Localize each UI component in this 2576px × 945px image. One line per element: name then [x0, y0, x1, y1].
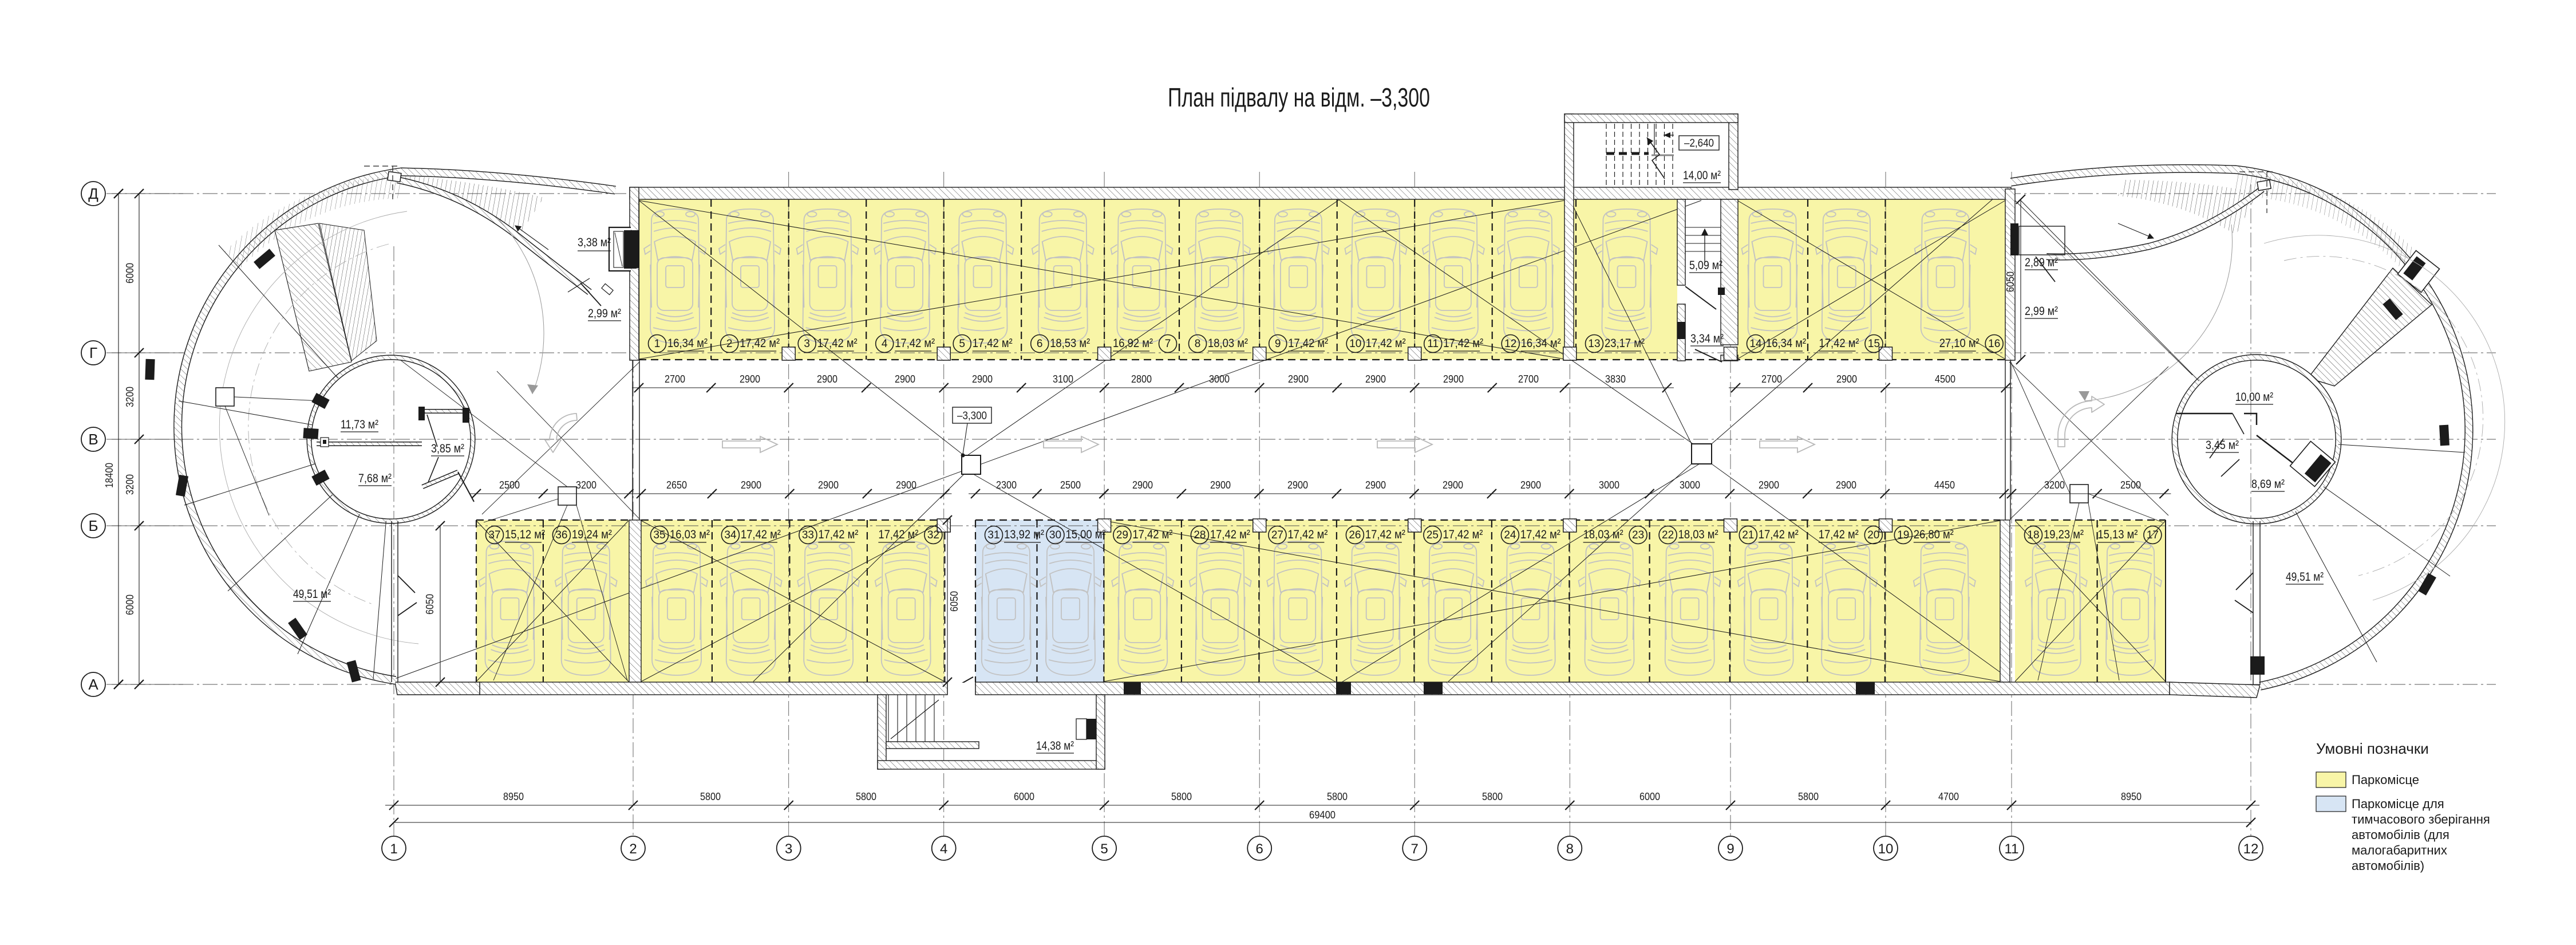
- svg-text:5800: 5800: [1482, 791, 1503, 802]
- svg-text:23,17 м²: 23,17 м²: [1605, 337, 1645, 350]
- svg-text:17: 17: [2147, 529, 2159, 541]
- svg-text:6: 6: [1256, 841, 1263, 857]
- svg-text:6000: 6000: [1639, 791, 1660, 802]
- svg-text:6: 6: [1037, 338, 1043, 350]
- svg-text:19,23 м²: 19,23 м²: [2044, 528, 2084, 541]
- svg-text:29: 29: [1116, 529, 1128, 541]
- svg-text:2900: 2900: [1836, 479, 1856, 491]
- svg-text:2900: 2900: [740, 373, 760, 385]
- svg-text:14: 14: [1749, 338, 1762, 350]
- svg-text:9: 9: [1275, 338, 1281, 350]
- svg-text:3,85 м²: 3,85 м²: [431, 442, 464, 455]
- svg-text:26: 26: [1349, 529, 1361, 541]
- svg-text:6000: 6000: [1014, 791, 1034, 802]
- svg-text:17,42 м²: 17,42 м²: [741, 528, 781, 541]
- svg-text:2900: 2900: [1287, 479, 1308, 491]
- svg-text:16: 16: [1988, 338, 2000, 350]
- svg-text:16,34 м²: 16,34 м²: [1766, 337, 1806, 350]
- svg-text:2900: 2900: [896, 479, 916, 491]
- svg-text:2500: 2500: [2120, 479, 2141, 491]
- svg-text:34: 34: [724, 529, 737, 541]
- svg-text:3,45 м²: 3,45 м²: [2206, 439, 2239, 452]
- svg-text:36: 36: [555, 529, 567, 541]
- svg-text:2900: 2900: [895, 373, 915, 385]
- svg-text:32: 32: [927, 529, 939, 541]
- svg-text:23: 23: [1632, 529, 1644, 541]
- svg-text:7,68 м²: 7,68 м²: [358, 472, 392, 485]
- svg-text:6050: 6050: [424, 594, 436, 615]
- svg-text:Умовні позначки: Умовні позначки: [2316, 740, 2429, 757]
- svg-text:6000: 6000: [124, 594, 136, 615]
- svg-text:2900: 2900: [1132, 479, 1153, 491]
- svg-text:малогабаритних: малогабаритних: [2352, 843, 2447, 857]
- svg-text:3200: 3200: [124, 474, 136, 495]
- svg-text:16,92 м²: 16,92 м²: [1113, 337, 1153, 350]
- svg-text:17,42 м²: 17,42 м²: [1132, 528, 1172, 541]
- svg-text:25: 25: [1427, 529, 1439, 541]
- svg-text:2500: 2500: [1060, 479, 1081, 491]
- svg-text:8950: 8950: [503, 791, 524, 802]
- svg-text:2900: 2900: [1365, 373, 1386, 385]
- svg-text:3000: 3000: [1680, 479, 1700, 491]
- svg-text:4: 4: [940, 841, 947, 857]
- svg-text:автомобілів): автомобілів): [2352, 859, 2424, 873]
- svg-text:18,03 м²: 18,03 м²: [1208, 337, 1248, 350]
- svg-text:Д: Д: [88, 185, 98, 202]
- svg-text:3,38 м²: 3,38 м²: [578, 236, 611, 249]
- svg-text:автомобілів (для: автомобілів (для: [2352, 828, 2449, 842]
- svg-text:4: 4: [882, 338, 888, 350]
- svg-text:14,38 м²: 14,38 м²: [1036, 739, 1074, 753]
- svg-text:69400: 69400: [1309, 809, 1336, 821]
- svg-text:17,42 м²: 17,42 м²: [1520, 528, 1560, 541]
- svg-text:8: 8: [1195, 338, 1201, 350]
- svg-text:2700: 2700: [665, 373, 685, 385]
- svg-text:8,69 м²: 8,69 м²: [2251, 478, 2285, 491]
- svg-text:2800: 2800: [1131, 373, 1152, 385]
- svg-text:33: 33: [802, 529, 814, 541]
- svg-text:37: 37: [488, 529, 500, 541]
- svg-text:2300: 2300: [996, 479, 1017, 491]
- svg-text:35: 35: [653, 529, 665, 541]
- svg-text:10: 10: [1878, 841, 1894, 857]
- svg-text:тимчасового зберігання: тимчасового зберігання: [2352, 812, 2490, 826]
- svg-text:1: 1: [654, 338, 661, 350]
- svg-text:19,24 м²: 19,24 м²: [572, 528, 612, 541]
- svg-text:3100: 3100: [1053, 373, 1073, 385]
- svg-text:13,92 м²: 13,92 м²: [1004, 528, 1044, 541]
- svg-text:12: 12: [2243, 841, 2259, 857]
- svg-text:Паркомісце: Паркомісце: [2352, 773, 2419, 787]
- svg-text:19: 19: [1897, 529, 1909, 541]
- svg-text:17,42 м²: 17,42 м²: [818, 528, 858, 541]
- svg-text:3200: 3200: [576, 479, 596, 491]
- svg-text:Г: Г: [89, 344, 97, 361]
- svg-text:49,51 м²: 49,51 м²: [293, 588, 331, 601]
- svg-text:2900: 2900: [1210, 479, 1231, 491]
- svg-text:2900: 2900: [1520, 479, 1541, 491]
- svg-text:2700: 2700: [1518, 373, 1539, 385]
- svg-text:А: А: [88, 676, 98, 693]
- svg-text:15: 15: [1868, 338, 1880, 350]
- svg-text:18: 18: [2027, 529, 2039, 541]
- svg-text:2650: 2650: [666, 479, 687, 491]
- svg-text:3200: 3200: [124, 387, 136, 407]
- svg-text:3: 3: [785, 841, 792, 857]
- svg-text:12: 12: [1504, 338, 1516, 350]
- svg-text:2,99 м²: 2,99 м²: [2025, 305, 2058, 318]
- svg-text:49,51 м²: 49,51 м²: [2286, 570, 2324, 584]
- svg-text:4450: 4450: [1934, 479, 1955, 491]
- svg-text:17,42 м²: 17,42 м²: [1366, 337, 1406, 350]
- svg-text:27: 27: [1271, 529, 1283, 541]
- svg-text:11: 11: [1427, 338, 1439, 350]
- svg-text:17,42 м²: 17,42 м²: [740, 337, 780, 350]
- svg-text:17,42 м²: 17,42 м²: [973, 337, 1013, 350]
- svg-text:2,99 м²: 2,99 м²: [588, 307, 621, 320]
- svg-text:18,03 м²: 18,03 м²: [1583, 528, 1623, 541]
- svg-text:2900: 2900: [817, 373, 837, 385]
- svg-text:14,00 м²: 14,00 м²: [1683, 169, 1721, 182]
- svg-text:4500: 4500: [1935, 373, 1955, 385]
- svg-text:17,42 м²: 17,42 м²: [1365, 528, 1405, 541]
- svg-text:2700: 2700: [1761, 373, 1782, 385]
- svg-text:3,34 м²: 3,34 м²: [1690, 332, 1724, 345]
- svg-text:17,42 м²: 17,42 м²: [1443, 337, 1483, 350]
- svg-text:16,34 м²: 16,34 м²: [1521, 337, 1561, 350]
- svg-text:4700: 4700: [1938, 791, 1959, 802]
- svg-text:6050: 6050: [2005, 271, 2016, 292]
- svg-text:2900: 2900: [1836, 373, 1857, 385]
- svg-text:24: 24: [1504, 529, 1516, 541]
- svg-text:1: 1: [390, 841, 397, 857]
- svg-text:2900: 2900: [972, 373, 993, 385]
- svg-text:2900: 2900: [1365, 479, 1386, 491]
- svg-text:3830: 3830: [1605, 373, 1626, 385]
- svg-text:–2,640: –2,640: [1684, 137, 1714, 149]
- svg-text:5: 5: [1100, 841, 1108, 857]
- svg-text:5: 5: [959, 338, 965, 350]
- svg-text:9: 9: [1726, 841, 1734, 857]
- svg-text:2900: 2900: [1288, 373, 1309, 385]
- svg-text:11: 11: [2005, 841, 2019, 857]
- svg-text:5800: 5800: [700, 791, 721, 802]
- svg-text:31: 31: [987, 529, 999, 541]
- svg-text:28: 28: [1194, 529, 1206, 541]
- svg-text:18400: 18400: [104, 463, 115, 488]
- svg-text:3: 3: [804, 338, 810, 350]
- svg-text:18,53 м²: 18,53 м²: [1050, 337, 1090, 350]
- svg-text:17,42 м²: 17,42 м²: [1443, 528, 1483, 541]
- svg-text:20: 20: [1867, 529, 1879, 541]
- svg-text:Паркомісце для: Паркомісце для: [2352, 797, 2444, 811]
- svg-text:3000: 3000: [1599, 479, 1619, 491]
- svg-text:17,42 м²: 17,42 м²: [1819, 337, 1859, 350]
- svg-text:7: 7: [1411, 841, 1419, 857]
- svg-text:17,42 м²: 17,42 м²: [1210, 528, 1250, 541]
- svg-text:17,42 м²: 17,42 м²: [1819, 528, 1859, 541]
- svg-text:6050: 6050: [949, 591, 960, 612]
- svg-text:21: 21: [1742, 529, 1754, 541]
- svg-text:5800: 5800: [856, 791, 876, 802]
- svg-text:6000: 6000: [124, 263, 136, 283]
- svg-text:5,09 м²: 5,09 м²: [1689, 259, 1722, 272]
- svg-text:5800: 5800: [1171, 791, 1192, 802]
- svg-text:27,10 м²: 27,10 м²: [1939, 337, 1980, 350]
- svg-text:2900: 2900: [1443, 479, 1463, 491]
- svg-text:–3,300: –3,300: [957, 410, 987, 422]
- svg-text:17,42 м²: 17,42 м²: [878, 528, 918, 541]
- svg-text:2: 2: [629, 841, 637, 857]
- svg-text:План підвалу на відм. –3,300: План підвалу на відм. –3,300: [1168, 82, 1430, 112]
- svg-text:17,42 м²: 17,42 м²: [895, 337, 935, 350]
- svg-text:26,80 м²: 26,80 м²: [1914, 528, 1954, 541]
- svg-text:17,42 м²: 17,42 м²: [1287, 528, 1327, 541]
- svg-text:2: 2: [726, 338, 733, 350]
- svg-text:8: 8: [1566, 841, 1574, 857]
- svg-text:2900: 2900: [1759, 479, 1779, 491]
- svg-text:15,12 м²: 15,12 м²: [505, 528, 545, 541]
- svg-text:3000: 3000: [1209, 373, 1230, 385]
- svg-text:17,42 м²: 17,42 м²: [817, 337, 858, 350]
- svg-text:22: 22: [1662, 529, 1674, 541]
- svg-text:8950: 8950: [2121, 791, 2142, 802]
- svg-text:17,42 м²: 17,42 м²: [1759, 528, 1799, 541]
- svg-text:30: 30: [1049, 529, 1061, 541]
- svg-text:2900: 2900: [741, 479, 761, 491]
- svg-text:16,03 м²: 16,03 м²: [670, 528, 710, 541]
- svg-text:15,00 м²: 15,00 м²: [1066, 528, 1106, 541]
- svg-text:11,73 м²: 11,73 м²: [341, 418, 378, 431]
- svg-text:10,00 м²: 10,00 м²: [2235, 391, 2273, 404]
- svg-text:5800: 5800: [1327, 791, 1348, 802]
- svg-text:15,13 м²: 15,13 м²: [2097, 528, 2138, 541]
- svg-text:5800: 5800: [1798, 791, 1819, 802]
- svg-text:3200: 3200: [2044, 479, 2065, 491]
- svg-text:16,34 м²: 16,34 м²: [667, 337, 708, 350]
- svg-text:13: 13: [1588, 338, 1600, 350]
- svg-text:2500: 2500: [499, 479, 520, 491]
- svg-text:17,42 м²: 17,42 м²: [1288, 337, 1328, 350]
- svg-text:2900: 2900: [1443, 373, 1464, 385]
- svg-text:2,89 м²: 2,89 м²: [2025, 256, 2058, 269]
- svg-text:В: В: [88, 431, 98, 448]
- svg-text:10: 10: [1349, 338, 1361, 350]
- svg-text:18,03 м²: 18,03 м²: [1678, 528, 1718, 541]
- svg-text:2900: 2900: [818, 479, 839, 491]
- svg-text:7: 7: [1165, 338, 1171, 350]
- svg-text:Б: Б: [88, 517, 98, 534]
